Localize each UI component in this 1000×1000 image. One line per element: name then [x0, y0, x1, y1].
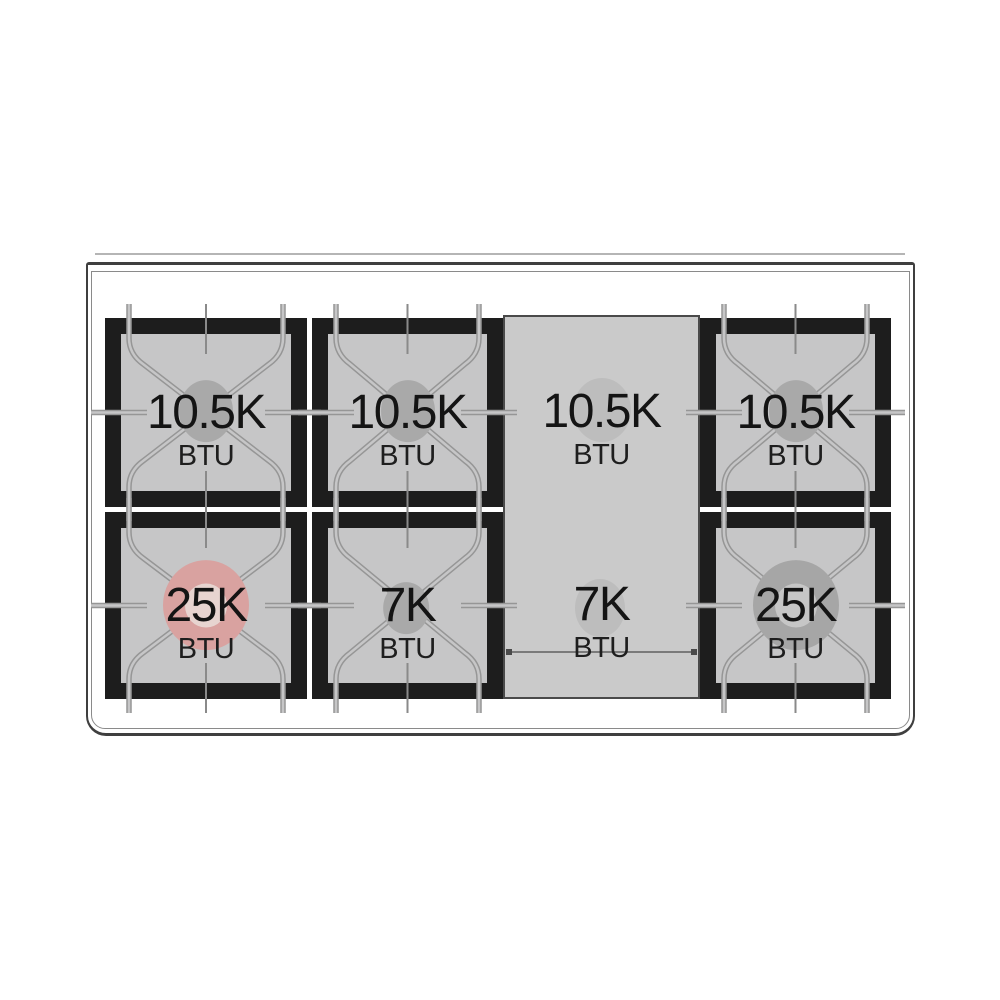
burner-unit-label: BTU: [105, 634, 307, 664]
cooktop-back-edge-line: [95, 253, 905, 255]
griddle-label-front: 7K BTU: [505, 580, 698, 663]
burner-power-label: 25K: [700, 581, 891, 631]
burner-grate-front-right: 25K BTU: [700, 512, 891, 699]
burner-power-label: 10.5K: [700, 388, 891, 438]
burner-grate-front-left: 25K BTU: [105, 512, 307, 699]
burner-power-label: 7K: [505, 580, 698, 630]
burner-grate-front-center-left: 7K BTU: [312, 512, 503, 699]
burner-unit-label: BTU: [312, 634, 503, 664]
burner-label: 25K BTU: [700, 581, 891, 664]
burner-grate-rear-left: 10.5K BTU: [105, 318, 307, 507]
burner-power-label: 7K: [312, 581, 503, 631]
burner-unit-label: BTU: [505, 633, 698, 663]
burner-unit-label: BTU: [505, 440, 698, 470]
burner-grate-rear-right: 10.5K BTU: [700, 318, 891, 507]
griddle-label-rear: 10.5K BTU: [505, 387, 698, 470]
burner-power-label: 10.5K: [505, 387, 698, 437]
burner-power-label: 10.5K: [105, 388, 307, 438]
burner-unit-label: BTU: [700, 441, 891, 471]
griddle-panel: 10.5K BTU 7K BTU: [503, 315, 700, 699]
burner-power-label: 10.5K: [312, 388, 503, 438]
burner-unit-label: BTU: [312, 441, 503, 471]
burner-label: 10.5K BTU: [105, 388, 307, 471]
burner-grate-rear-center-left: 10.5K BTU: [312, 318, 503, 507]
cooktop-diagram: 10.5K BTU 10.5K BTU 10.5K BTU 25K BTU: [0, 0, 1000, 1000]
burner-label: 10.5K BTU: [312, 388, 503, 471]
burner-label: 7K BTU: [312, 581, 503, 664]
burner-label: 25K BTU: [105, 581, 307, 664]
burner-unit-label: BTU: [105, 441, 307, 471]
burner-power-label: 25K: [105, 581, 307, 631]
burner-unit-label: BTU: [700, 634, 891, 664]
burner-label: 10.5K BTU: [700, 388, 891, 471]
